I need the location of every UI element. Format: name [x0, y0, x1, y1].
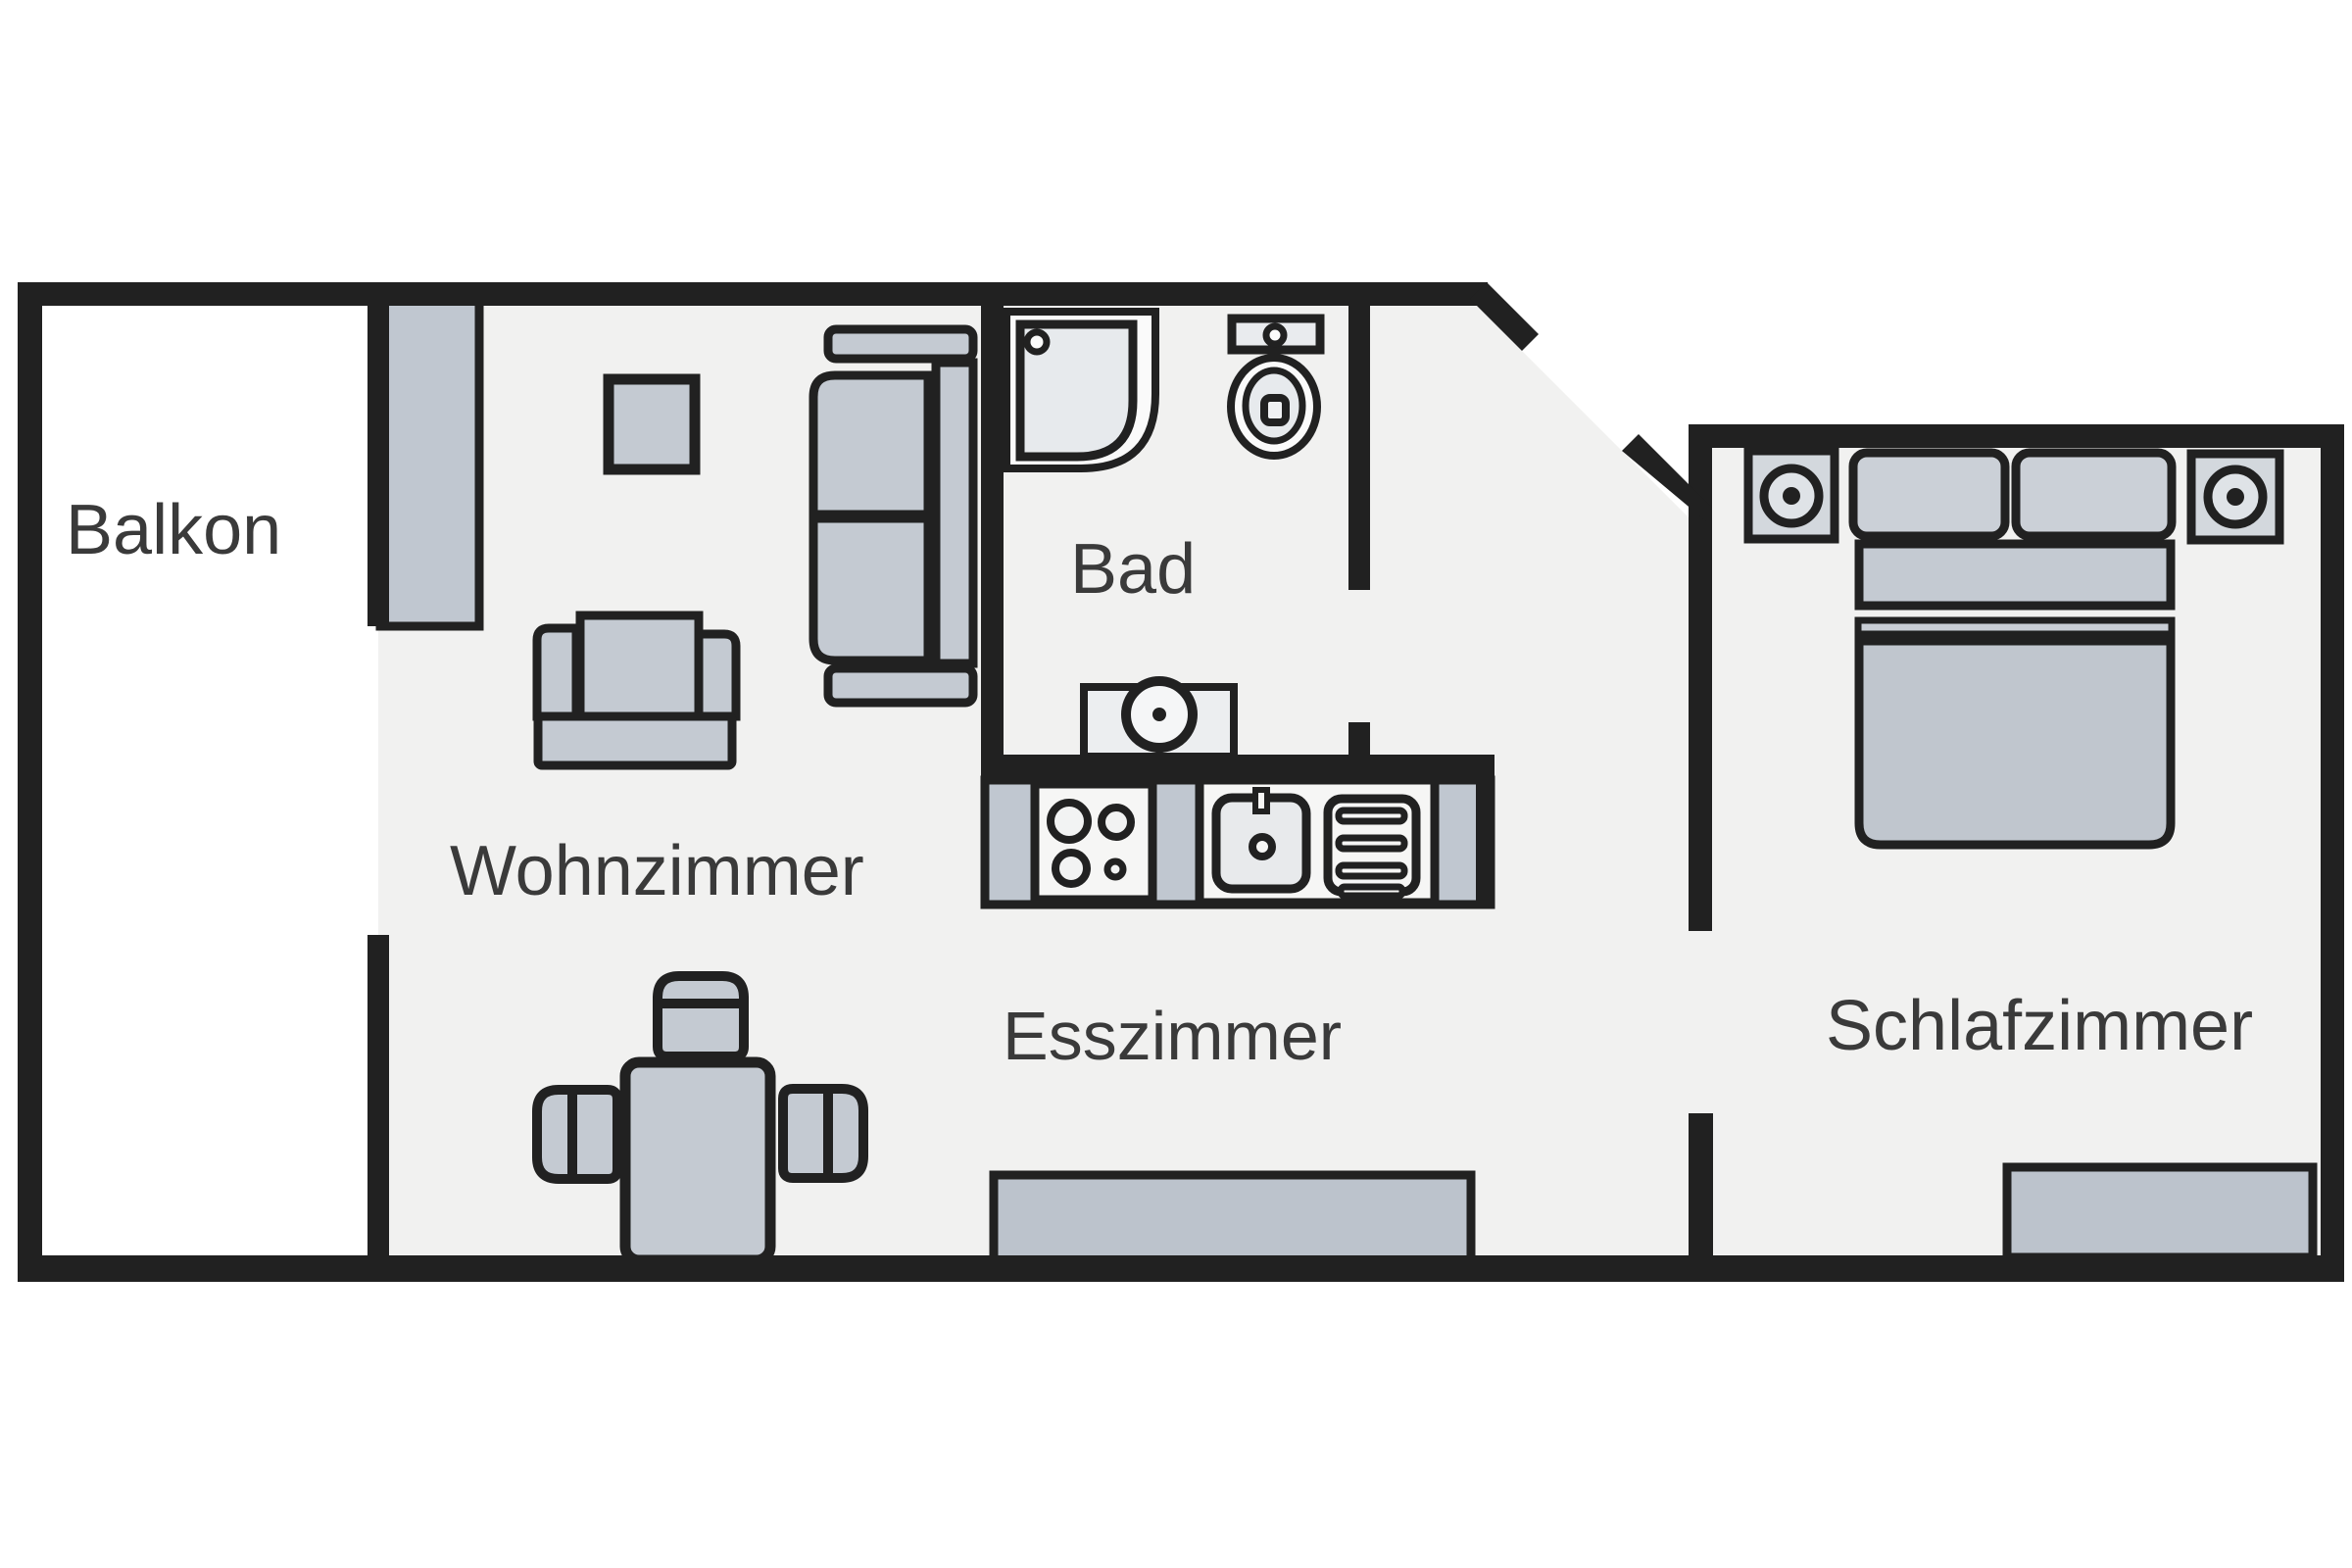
svg-text:Wohnzimmer: Wohnzimmer — [450, 832, 864, 910]
svg-text:Schlafzimmer: Schlafzimmer — [1826, 987, 2253, 1065]
svg-text:Balkon: Balkon — [66, 491, 281, 569]
svg-text:Esszimmer: Esszimmer — [1003, 998, 1342, 1074]
svg-text:Bad: Bad — [1070, 530, 1196, 609]
